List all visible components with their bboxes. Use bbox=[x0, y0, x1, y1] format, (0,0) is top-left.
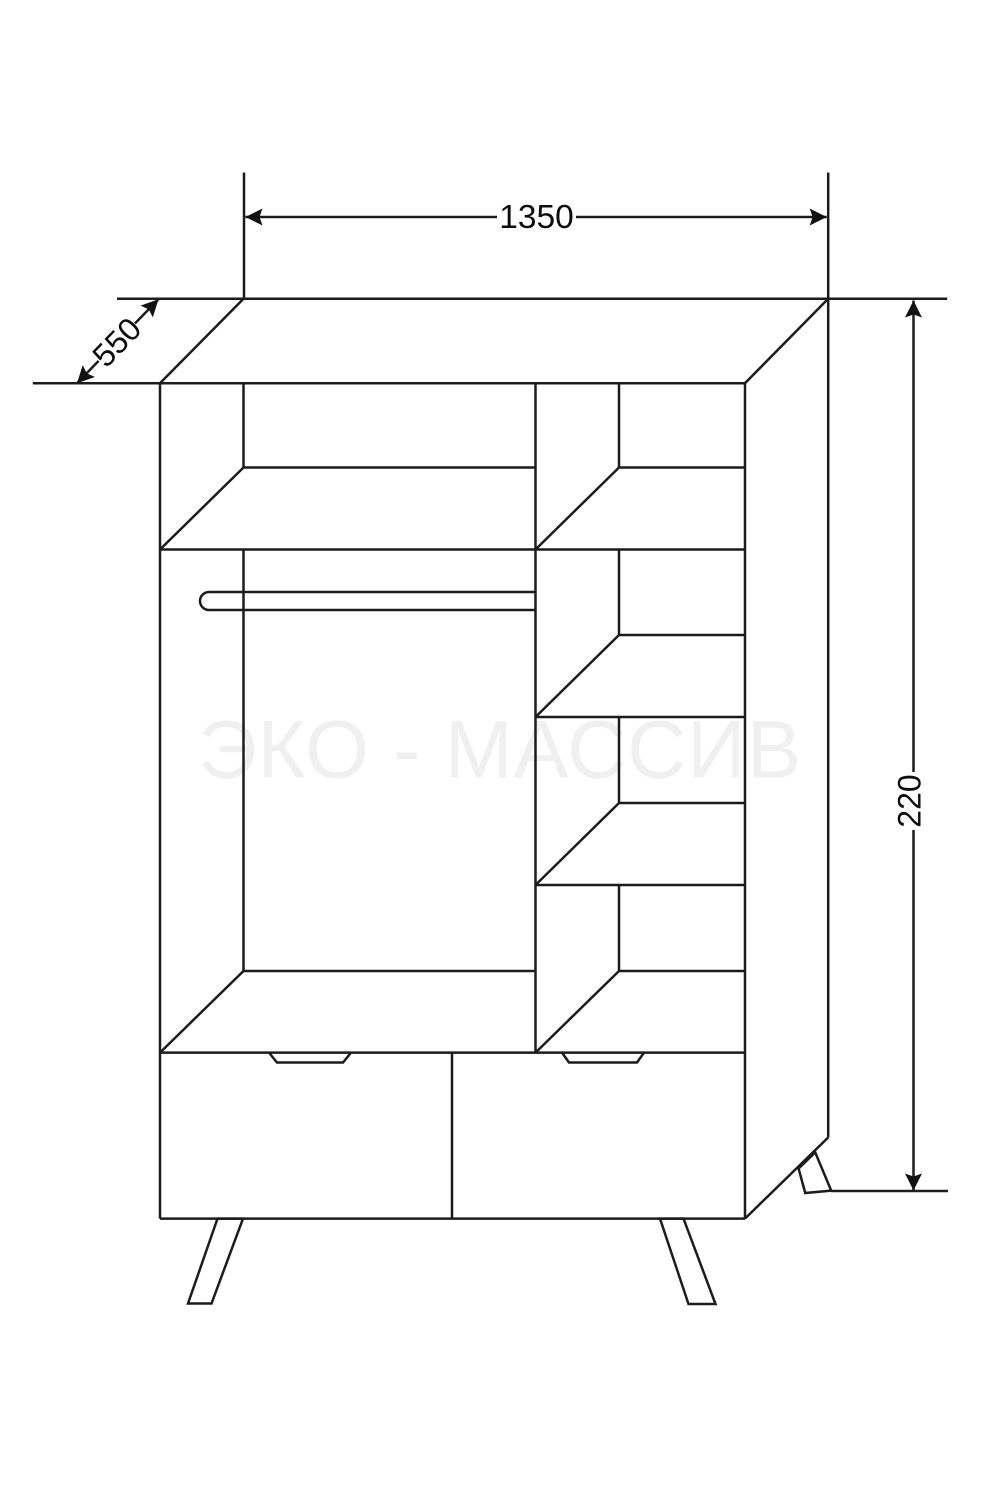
svg-text:220: 220 bbox=[892, 774, 928, 827]
svg-text:1350: 1350 bbox=[499, 199, 574, 236]
